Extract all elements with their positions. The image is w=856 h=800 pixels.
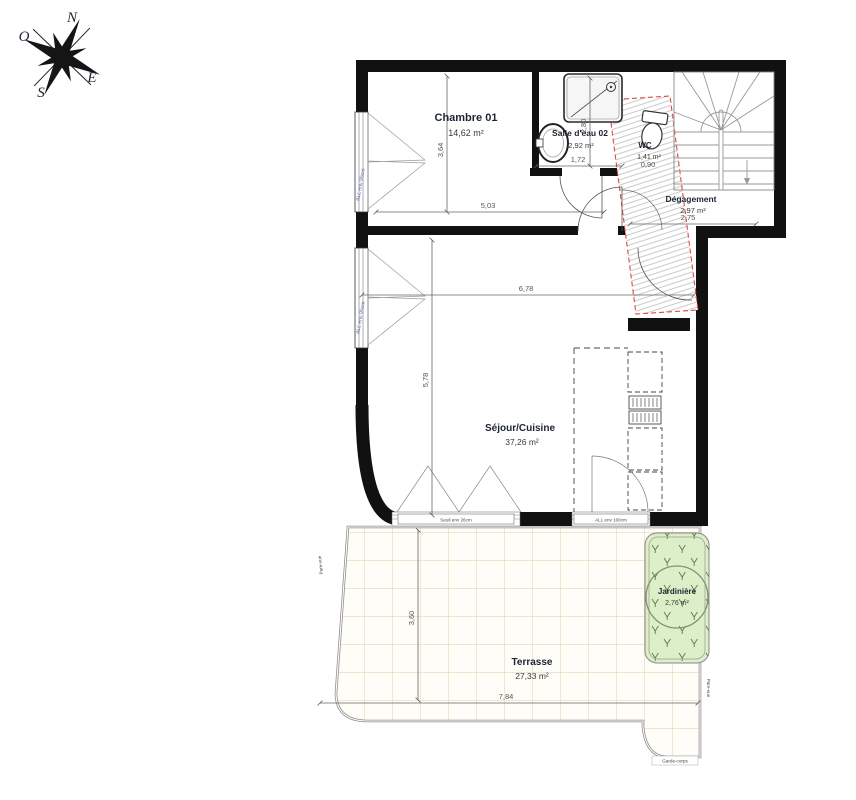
staircase-steps-right: [723, 132, 774, 184]
dim-chambre-h: 3,64: [436, 143, 445, 158]
staircase-outline: [674, 72, 774, 190]
sejour-area: 37,26 m²: [505, 437, 539, 447]
wall-top: [368, 60, 786, 72]
wall-right-sejour: [696, 226, 708, 524]
kitchen-unit-3: [628, 472, 662, 510]
seuil-label: Seuil env 26cm: [440, 518, 472, 523]
kitchen-unit-2: [628, 428, 662, 470]
degagement-area: 2,97 m²: [680, 206, 706, 215]
degagement-name: Dégagement: [665, 194, 716, 204]
chambre-name: Chambre 01: [435, 112, 498, 124]
french-door-triangles: [397, 466, 521, 512]
salle-deau-area: 2,92 m²: [568, 141, 594, 150]
staircase-steps-left: [674, 132, 719, 184]
dim-terrasse-h: 3,60: [407, 611, 416, 626]
salle-deau-name: Salle d'eau 02: [552, 128, 608, 138]
dim-wc-w: 0,90: [641, 160, 656, 169]
kitchen-sink-icon: [629, 396, 661, 424]
wall-bottom-seg2: [650, 512, 708, 526]
wall-corridor-stub: [628, 318, 690, 331]
terrasse-area: 27,33 m²: [515, 671, 549, 681]
window-chambre: ALL env 95cm: [355, 112, 425, 212]
dim-sejour-h: 5,78: [421, 373, 430, 388]
bay-opening-1: Seuil env 26cm: [392, 466, 521, 526]
washbasin-tap: [536, 139, 543, 147]
wc-name: WC: [638, 141, 652, 150]
compass-west-label: O: [19, 29, 30, 45]
kitchen-unit-1: [628, 352, 662, 392]
kitchen-zone-outline: [574, 348, 628, 524]
garde-corps-label: Garde-corps: [662, 759, 688, 764]
sejour-name: Séjour/Cuisine: [485, 423, 555, 434]
staircase: [674, 72, 774, 190]
jardiniere-zone: Jardinière 2,76 m²: [645, 533, 709, 663]
allege-label: ALL env 100cm: [595, 518, 627, 523]
compass-east-label: E: [86, 70, 96, 86]
pare-vue-label-left: Pare-vue: [317, 555, 324, 575]
wall-salle-deau-left: [532, 72, 539, 172]
casement-triangles: [368, 249, 425, 345]
dim-chambre-w: 5,03: [481, 201, 496, 210]
staircase-divider: [719, 110, 723, 190]
shower-drain: [610, 86, 612, 88]
floor-plan-page: N O E S Jardinière 2,76 m² Terrasse 27,3…: [0, 0, 856, 800]
dim-terrasse-w: 7,84: [499, 692, 514, 701]
staircase-winders: [674, 72, 774, 130]
casement-triangles: [368, 113, 425, 209]
terrace-zone: Jardinière 2,76 m² Terrasse 27,33 m² Gar…: [317, 527, 711, 765]
compass-star-diagonal: [29, 24, 96, 91]
wc-corridor-zone: [608, 96, 698, 314]
jardiniere-area: 2,76 m²: [665, 600, 689, 607]
wall-bottom-seg1: [520, 512, 572, 526]
dim-sejour-w: 6,78: [519, 284, 534, 293]
wall-corner-curve: [362, 405, 400, 519]
door-arc-chambre: [578, 187, 622, 231]
kitchen-units: [574, 348, 662, 524]
grass-pattern: [645, 533, 709, 663]
door-arc-bay: [592, 456, 648, 512]
window-sejour: ALL env 95cm: [355, 248, 425, 348]
compass-rose: N O E S: [6, 1, 118, 113]
floor-plan-canvas: N O E S Jardinière 2,76 m² Terrasse 27,3…: [0, 0, 856, 800]
wall-salle-deau-bottom-a: [530, 168, 562, 176]
chambre-area: 14,62 m²: [448, 128, 484, 138]
dim-sdb-w: 1,72: [571, 155, 586, 164]
jardiniere-name: Jardinière: [658, 587, 697, 596]
wc-area: 1,41 m²: [637, 154, 661, 161]
wall-right-upper: [774, 60, 786, 238]
compass-south-label: S: [37, 85, 45, 101]
terrasse-name: Terrasse: [512, 657, 553, 668]
wall-degagement-bottom: [700, 226, 786, 238]
wall-chambre-bottom: [368, 226, 578, 235]
bay-opening-2: ALL env 100cm: [572, 456, 650, 526]
pare-vue-label-right: Pare-vue: [706, 679, 711, 698]
compass-north-label: N: [66, 10, 78, 26]
shower-icon: [564, 74, 622, 122]
